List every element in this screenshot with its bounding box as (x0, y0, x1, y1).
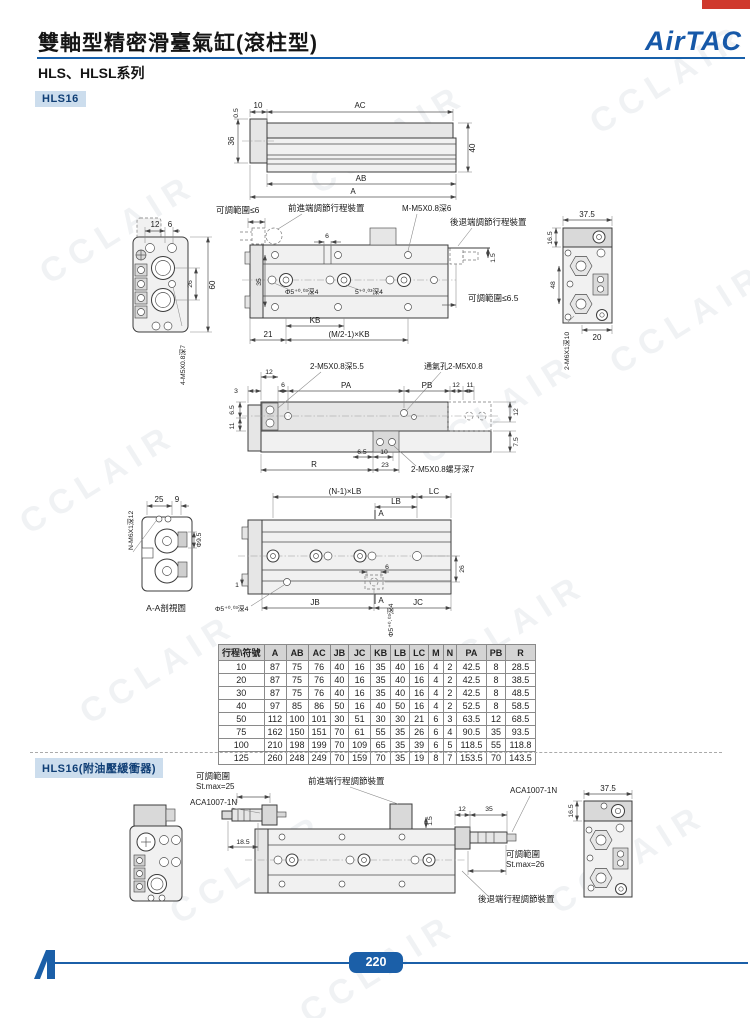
dim-ac: AC (354, 101, 365, 110)
dim-value: 52.5 (457, 700, 487, 713)
table-row: 1252602482497015970351987153.570143.5 (219, 752, 536, 765)
column-header: N (443, 645, 457, 661)
column-header: AB (286, 645, 308, 661)
dim-value: 260 (264, 752, 286, 765)
bottom-view-body (242, 402, 498, 452)
stroke-value: 40 (219, 700, 265, 713)
dim-value: 4 (443, 726, 457, 739)
dim-value: 5 (443, 739, 457, 752)
dim-value: 51 (349, 713, 371, 726)
dim-40: 40 (468, 143, 477, 152)
table-row: 3087757640163540164242.5848.5 (219, 687, 536, 700)
dim-value: 2 (443, 661, 457, 674)
front-adjuster-label-2: 前進端行程調節裝置 (308, 776, 385, 786)
dim-value: 8 (486, 661, 506, 674)
table-row: 1087757640163540164242.5828.5 (219, 661, 536, 674)
dim-a: A (350, 187, 356, 196)
column-header: M (429, 645, 444, 661)
dim-value: 2 (443, 687, 457, 700)
footer-logo (32, 947, 60, 983)
dim-60: 60 (208, 280, 217, 289)
dim-12-buffer: 12 (458, 806, 466, 813)
dim-1-5-buffer: 1.5 (427, 816, 434, 826)
dim-6-5-left: 6.5 (229, 405, 236, 415)
dim-value: 6 (429, 713, 444, 726)
dim-value: 70 (330, 739, 349, 752)
dim-value: 3 (443, 713, 457, 726)
rear-adjuster-label-2: 後退端行程調節裝置 (478, 894, 555, 904)
section-aa-view: 25 9 Φ9.5 N-M6X1深12 A-A剖視圖 (126, 495, 203, 613)
dimension-table: 行程\符號AABACJBJCKBLBLCMNPAPBR 108775764016… (218, 644, 536, 765)
dim-value: 199 (308, 739, 330, 752)
dim-12t: 12 (265, 369, 273, 376)
dim-35: 35 (256, 278, 263, 286)
column-header: KB (371, 645, 391, 661)
dim-value: 61 (349, 726, 371, 739)
dim-n1-lb: (N-1)×LB (329, 487, 362, 496)
table-row: 7516215015170615535266490.53593.5 (219, 726, 536, 739)
dim-value: 65 (371, 739, 391, 752)
airtac-logo: AirTAC (645, 26, 742, 57)
column-header: AC (308, 645, 330, 661)
dim-value: 76 (308, 674, 330, 687)
dim-11-left: 11 (229, 422, 236, 429)
dim-value: 87 (264, 674, 286, 687)
dim-value: 21 (410, 713, 429, 726)
dim-value: 70 (371, 752, 391, 765)
dim-value: 40 (330, 661, 349, 674)
dim-value: 19 (410, 752, 429, 765)
dim-value: 40 (391, 674, 410, 687)
dim-value: 151 (308, 726, 330, 739)
dim-35-buffer: 35 (485, 806, 493, 813)
dim-value: 35 (371, 687, 391, 700)
adjust-range-label-2: 可調範圍 (506, 849, 540, 859)
section-caption: A-A剖視圖 (146, 603, 186, 613)
front-adjuster-label: 前進端調節行程裝置 (288, 203, 365, 213)
dim-6-5-bottom: 6.5 (357, 449, 367, 456)
dim-0-5: 0.5 (233, 108, 240, 118)
column-header: LC (410, 645, 429, 661)
section-marker-bottom: A (378, 596, 384, 605)
drawing-section-view: 25 9 Φ9.5 N-M6X1深12 A-A剖視圖 (103, 486, 538, 640)
dim-pb: PB (422, 381, 433, 390)
dim-value: 76 (308, 661, 330, 674)
dim-12-right: 12 (513, 408, 520, 416)
dim-value: 85 (286, 700, 308, 713)
stroke-value: 10 (219, 661, 265, 674)
thread-callout-left: 4-M5X0.8深7 (178, 345, 187, 385)
dim-value: 7 (443, 752, 457, 765)
dim-value: 35 (486, 726, 506, 739)
dim-value: 4 (429, 661, 444, 674)
dim-value: 162 (264, 726, 286, 739)
dim-value: 8 (429, 752, 444, 765)
dim-value: 2 (443, 700, 457, 713)
dim-20: 20 (593, 333, 602, 342)
stroke-value: 20 (219, 674, 265, 687)
model-badge: HLS16 (35, 91, 86, 107)
buffer-body (222, 804, 516, 893)
dim-value: 30 (330, 713, 349, 726)
dim-value: 8 (486, 700, 506, 713)
dim-11: 11 (466, 382, 473, 389)
hole-callout-2: 5⁺⁰·⁰³深4 (355, 287, 383, 296)
dim-23: 23 (381, 462, 389, 469)
dim-10-bottom: 10 (380, 449, 388, 456)
dimension-table-body: 1087757640163540164242.5828.520877576401… (219, 661, 536, 765)
stroke-value: 50 (219, 713, 265, 726)
rear-adjuster-label: 後退端調節行程裝置 (450, 217, 527, 227)
dim-value: 63.5 (457, 713, 487, 726)
section-marker-top: A (378, 509, 384, 518)
dim-value: 112 (264, 713, 286, 726)
dim-value: 153.5 (457, 752, 487, 765)
table-row: 2087757640163540164242.5838.5 (219, 674, 536, 687)
thread-top-label: 2-M5X0.8深5.5 (310, 362, 364, 371)
column-header: R (506, 645, 536, 661)
dim-value: 68.5 (506, 713, 536, 726)
stroke-value: 125 (219, 752, 265, 765)
dim-lc: LC (429, 487, 439, 496)
aca-right-label: ACA1007-1N (510, 786, 557, 795)
column-header: A (264, 645, 286, 661)
dim-value: 42.5 (457, 687, 487, 700)
dim-10: 10 (254, 101, 263, 110)
dim-value: 4 (429, 700, 444, 713)
table-row: 1002101981997010965353965118.555118.8 (219, 739, 536, 752)
page-title: 雙軸型精密滑臺氣缸(滾柱型) (38, 27, 318, 57)
table-row: 4097858650164050164252.5858.5 (219, 700, 536, 713)
dim-value: 16 (410, 700, 429, 713)
dim-value: 198 (286, 739, 308, 752)
catalog-page: CCLAIRCCLAIRCCLAIRCCLAIRCCLAIRCCLAIRCCLA… (0, 0, 750, 1018)
dim-37-5-buffer: 37.5 (600, 784, 616, 793)
dim-value: 248 (286, 752, 308, 765)
drawing-buffer-view: 可調範圍 St.max=25 ACA1007-1N 前進端行程調節裝置 ACA1… (110, 771, 650, 948)
dim-value: 48.5 (506, 687, 536, 700)
dim-value: 16 (349, 687, 371, 700)
dim-9: 9 (175, 495, 180, 504)
dim-value: 118.8 (506, 739, 536, 752)
adjust-range-label-1: 可調範圍 (196, 771, 230, 781)
dim-value: 40 (330, 674, 349, 687)
dim-value: 70 (330, 726, 349, 739)
dim-25: 25 (155, 495, 164, 504)
column-header: PA (457, 645, 487, 661)
dim-12: 12 (151, 220, 160, 229)
dim-lb: LB (391, 497, 401, 506)
column-header: JB (330, 645, 349, 661)
dim-formula: (M/2-1)×KB (328, 330, 369, 339)
page-number-badge: 220 (349, 952, 403, 973)
dim-21: 21 (264, 330, 273, 339)
vent-hole-label: 通氣孔2-M5X0.8 (424, 361, 483, 371)
dim-jb: JB (310, 598, 319, 607)
dim-value: 38.5 (506, 674, 536, 687)
dim-value: 70 (486, 752, 506, 765)
table-row: 5011210010130513030216363.51268.5 (219, 713, 536, 726)
dim-37-5: 37.5 (579, 210, 595, 219)
dim-48: 48 (550, 281, 557, 289)
left-end-view: 12 6 26 60 4-M5X0.8深7 (133, 218, 217, 385)
dim-26: 26 (459, 565, 466, 573)
dim-value: 93.5 (506, 726, 536, 739)
dim-6t: 6 (281, 382, 285, 389)
dim-26: 26 (187, 280, 194, 288)
dim-value: 86 (308, 700, 330, 713)
dim-value: 90.5 (457, 726, 487, 739)
stroke-value: 100 (219, 739, 265, 752)
dim-value: 143.5 (506, 752, 536, 765)
dim-value: 249 (308, 752, 330, 765)
dim-value: 35 (391, 739, 410, 752)
dim-value: 42.5 (457, 661, 487, 674)
dim-12b: 12 (452, 382, 460, 389)
dim-dia-9-5: Φ9.5 (196, 532, 203, 547)
dim-36: 36 (227, 136, 236, 145)
drawing-bottom-view: 2-M5X0.8深5.5 通氣孔2-M5X0.8 3 12 6 PA PB 12… (226, 360, 536, 494)
dim-value: 16 (349, 700, 371, 713)
dim-value: 16 (410, 687, 429, 700)
dim-pa: PA (341, 381, 352, 390)
dim-value: 35 (371, 674, 391, 687)
dim-6: 6 (168, 220, 173, 229)
dim-value: 210 (264, 739, 286, 752)
dim-1-5: 1.5 (490, 253, 497, 263)
hole-callout-long: Φ5⁺⁰·⁰³深4 (215, 604, 249, 613)
dim-value: 75 (286, 687, 308, 700)
page-edge-tab (702, 0, 750, 9)
top-view-body (242, 119, 456, 172)
thread-callout-aa: N-M6X1深12 (126, 510, 135, 550)
stroke-value: 75 (219, 726, 265, 739)
dim-value: 97 (264, 700, 286, 713)
dim-value: 39 (410, 739, 429, 752)
dim-value: 150 (286, 726, 308, 739)
dim-value: 55 (371, 726, 391, 739)
dim-value: 40 (330, 687, 349, 700)
dim-value: 8 (486, 674, 506, 687)
dim-value: 50 (391, 700, 410, 713)
dim-value: 40 (391, 661, 410, 674)
dim-18-5: 18.5 (236, 839, 249, 846)
adjust-range-label: 可調範圍≤6 (216, 205, 260, 215)
dim-value: 58.5 (506, 700, 536, 713)
dim-value: 4 (429, 687, 444, 700)
dim-value: 50 (330, 700, 349, 713)
dim-value: 42.5 (457, 674, 487, 687)
right-end-view: 37.5 16.5 48 20 2-M6X1深10 (547, 210, 612, 370)
dim-value: 40 (391, 687, 410, 700)
footer-a-mark (34, 950, 55, 979)
dim-value: 87 (264, 661, 286, 674)
dim-value: 26 (410, 726, 429, 739)
dim-value: 109 (349, 739, 371, 752)
section-divider (30, 752, 722, 753)
dim-value: 75 (286, 661, 308, 674)
dim-jc: JC (413, 598, 423, 607)
aca-left-label: ACA1007-1N (190, 798, 237, 807)
dim-value: 40 (371, 700, 391, 713)
dim-value: 16 (349, 674, 371, 687)
series-subtitle: HLS、HLSL系列 (38, 63, 145, 83)
title-rule (37, 57, 745, 59)
thread-callout-right: 2-M6X1深10 (562, 332, 571, 370)
dim-value: 159 (349, 752, 371, 765)
st-max-25-label: St.max=25 (196, 782, 235, 791)
dim-value: 75 (286, 674, 308, 687)
hole-callout-rotated: Φ5⁺⁰·⁰³深4 (386, 603, 395, 637)
column-header: 行程\符號 (219, 645, 265, 661)
dimension-table-head-row: 行程\符號AABACJBJCKBLBLCMNPAPBR (219, 645, 536, 661)
dim-3: 3 (234, 388, 238, 395)
dim-16-5-buffer: 16.5 (568, 804, 575, 817)
dim-value: 16 (410, 674, 429, 687)
dim-value: 2 (443, 674, 457, 687)
long-view-body (238, 520, 459, 594)
dim-value: 76 (308, 687, 330, 700)
dim-value: 118.5 (457, 739, 487, 752)
dim-value: 16 (410, 661, 429, 674)
dim-value: 30 (371, 713, 391, 726)
dim-16-5: 16.5 (547, 231, 554, 244)
dim-1: 1 (235, 582, 239, 589)
dim-value: 16 (349, 661, 371, 674)
dim-ab: AB (356, 174, 367, 183)
dim-6-top: 6 (325, 233, 329, 240)
cylinder-front-body (240, 228, 490, 318)
column-header: PB (486, 645, 506, 661)
dim-value: 4 (429, 674, 444, 687)
dim-value: 35 (391, 726, 410, 739)
adjust-range-65-label: 可調範圍≤6.5 (468, 293, 519, 303)
st-max-26-label: St.max=26 (506, 860, 545, 869)
dim-value: 101 (308, 713, 330, 726)
dim-value: 35 (391, 752, 410, 765)
drawing-top-view: 10 AC 0.5 36 40 AB A (222, 97, 522, 205)
dim-value: 55 (486, 739, 506, 752)
column-header: LB (391, 645, 410, 661)
dim-value: 30 (391, 713, 410, 726)
buffer-left-end-view (130, 805, 182, 901)
dim-value: 100 (286, 713, 308, 726)
hole-callout-1: Φ5⁺⁰·⁰³深4 (285, 287, 319, 296)
dim-value: 70 (330, 752, 349, 765)
column-header: JC (349, 645, 371, 661)
dim-kb: KB (310, 316, 321, 325)
thread-bottom-label: 2-M5X0.8螺牙深7 (411, 464, 475, 474)
dim-value: 87 (264, 687, 286, 700)
dim-r: R (311, 460, 317, 469)
dim-6: 6 (385, 564, 389, 571)
dim-value: 6 (429, 726, 444, 739)
dim-value: 28.5 (506, 661, 536, 674)
dim-value: 12 (486, 713, 506, 726)
stroke-value: 30 (219, 687, 265, 700)
dim-value: 35 (371, 661, 391, 674)
dim-value: 6 (429, 739, 444, 752)
m-thread-label: M-M5X0.8深6 (402, 204, 452, 213)
buffer-right-end-view: 37.5 16.5 (568, 784, 632, 897)
dim-value: 8 (486, 687, 506, 700)
dim-7-5-right: 7.5 (513, 437, 520, 447)
